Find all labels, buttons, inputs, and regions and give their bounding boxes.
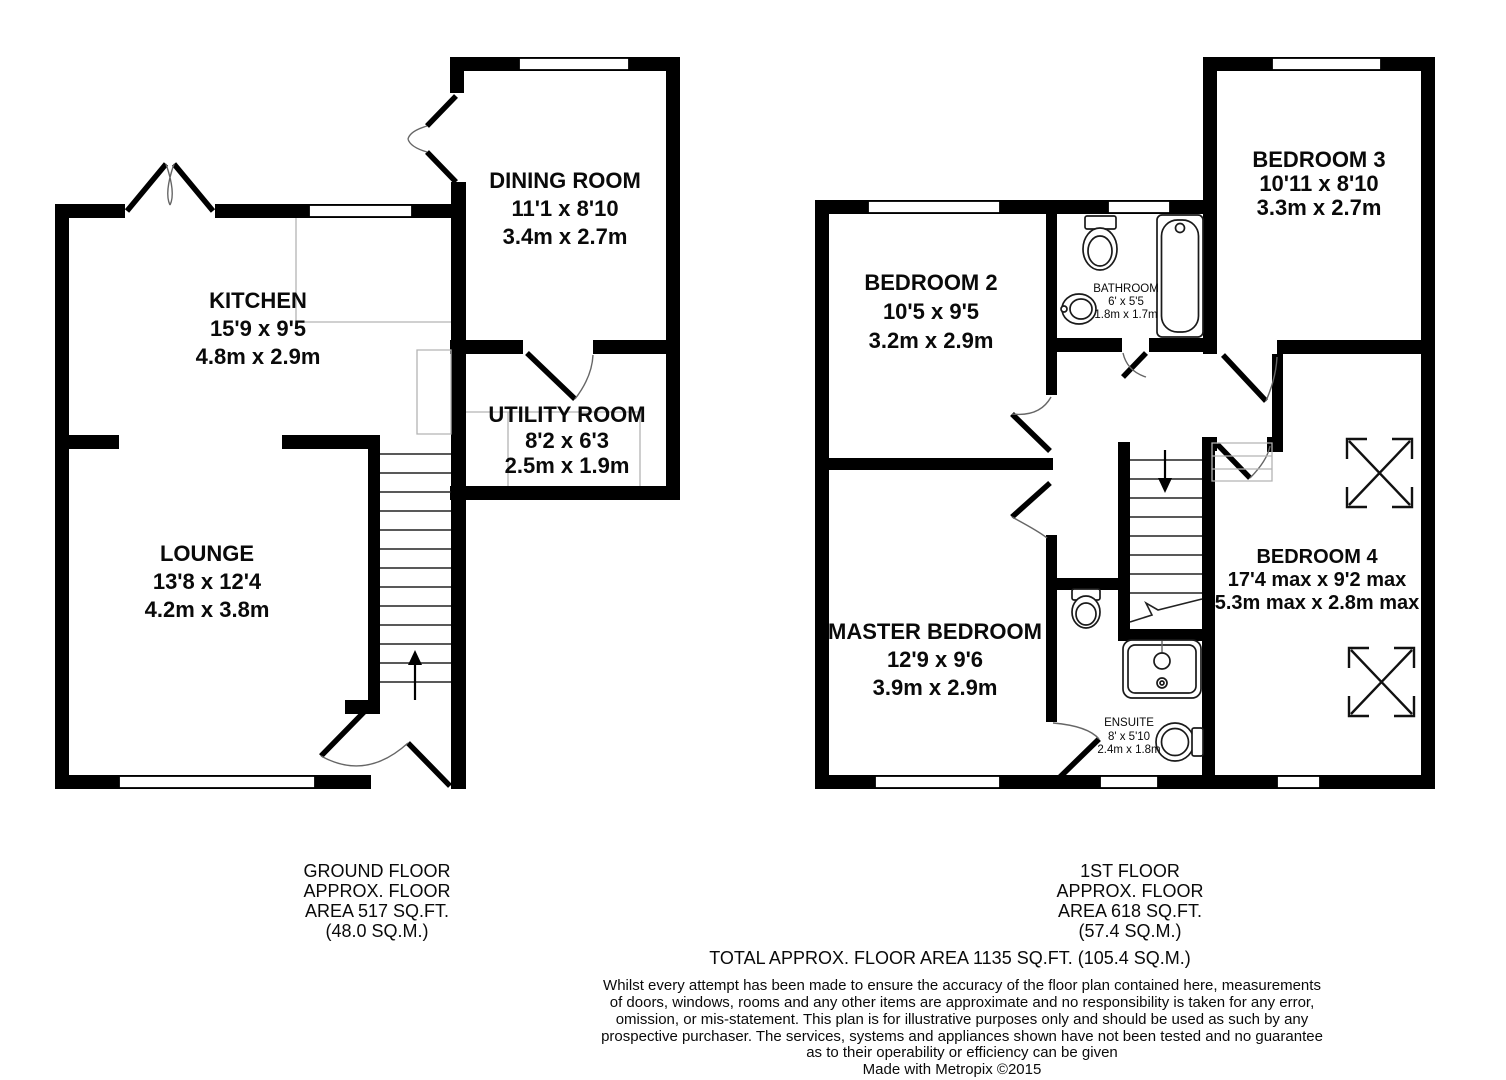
- bedroom3-door: [1223, 355, 1277, 401]
- ensuite-toilet-icon: [1072, 589, 1100, 628]
- dining-room-name: DINING ROOM: [489, 168, 641, 193]
- ground-floor-area-line1: GROUND FLOOR: [303, 861, 450, 881]
- bathroom-name: BATHROOM: [1093, 283, 1159, 295]
- first-floor-area-line3: AREA 618 SQ.FT.: [1058, 901, 1202, 921]
- room-label-master: MASTER BEDROOM 12'9 x 9'6 3.9m x 2.9m: [828, 619, 1042, 700]
- bedroom4-size-imperial: 17'4 max x 9'2 max: [1228, 569, 1407, 591]
- bedroom4-name: BEDROOM 4: [1256, 546, 1378, 568]
- kitchen-size-metric: 4.8m x 2.9m: [196, 344, 321, 369]
- disclaimer-line-4: prospective purchaser. The services, sys…: [601, 1028, 1323, 1045]
- crossed-box-symbol: [1347, 439, 1412, 507]
- bedroom2-name: BEDROOM 2: [864, 270, 997, 295]
- utility-size-imperial: 8'2 x 6'3: [525, 428, 609, 453]
- dining-room-size-imperial: 11'1 x 8'10: [511, 196, 618, 221]
- entrance-doors: [321, 710, 450, 786]
- utility-name: UTILITY ROOM: [488, 402, 645, 427]
- stairs-up-arrow-icon: [408, 650, 422, 700]
- stair-break-line: [1130, 599, 1202, 622]
- dining-window: [519, 58, 629, 70]
- bathroom-size-metric: 1.8m x 1.7m: [1094, 309, 1157, 321]
- total-area-line: TOTAL APPROX. FLOOR AREA 1135 SQ.FT. (10…: [709, 948, 1191, 968]
- footer-text: GROUND FLOOR APPROX. FLOOR AREA 517 SQ.F…: [303, 861, 1322, 1078]
- ensuite-size-imperial: 8' x 5'10: [1108, 731, 1150, 743]
- room-label-bathroom: BATHROOM 6' x 5'5 1.8m x 1.7m: [1093, 283, 1159, 321]
- stairs-down-arrow-icon: [1158, 450, 1172, 493]
- dining-room-size-metric: 3.4m x 2.7m: [503, 224, 628, 249]
- kitchen-size-imperial: 15'9 x 9'5: [210, 316, 306, 341]
- bedroom2-door: [1012, 397, 1051, 451]
- floorplan-image: DINING ROOM 11'1 x 8'10 3.4m x 2.7m KITC…: [0, 0, 1506, 1080]
- ground-staircase: [380, 454, 451, 700]
- master-door: [1012, 483, 1050, 538]
- first-floor-area-line2: APPROX. FLOOR: [1056, 881, 1203, 901]
- room-label-kitchen: KITCHEN 15'9 x 9'5 4.8m x 2.9m: [196, 288, 321, 369]
- metropix-credit: Made with Metropix ©2015: [863, 1061, 1042, 1078]
- disclaimer-line-1: Whilst every attempt has been made to en…: [603, 977, 1321, 994]
- master-name: MASTER BEDROOM: [828, 619, 1042, 644]
- ensuite-size-metric: 2.4m x 1.8m: [1097, 744, 1160, 756]
- dining-french-doors: [408, 96, 456, 182]
- bedroom2-size-imperial: 10'5 x 9'5: [883, 299, 979, 324]
- bathroom-basin-icon: [1061, 294, 1096, 324]
- ground-floor-area-block: GROUND FLOOR APPROX. FLOOR AREA 517 SQ.F…: [303, 861, 450, 941]
- first-floor-plan: BEDROOM 2 10'5 x 9'5 3.2m x 2.9m BATHROO…: [815, 57, 1435, 789]
- lounge-size-imperial: 13'8 x 12'4: [153, 569, 262, 594]
- ensuite-door: [1053, 723, 1099, 777]
- bedroom3-size-imperial: 10'11 x 8'10: [1259, 171, 1378, 196]
- bedroom3-size-metric: 3.3m x 2.7m: [1257, 195, 1382, 220]
- kitchen-window: [309, 205, 412, 217]
- bedroom3-name: BEDROOM 3: [1252, 147, 1385, 172]
- room-label-bedroom4: BEDROOM 4 17'4 max x 9'2 max 5.3m max x …: [1215, 546, 1420, 614]
- room-label-ensuite: ENSUITE 8' x 5'10 2.4m x 1.8m: [1097, 717, 1160, 756]
- bedroom2-window: [868, 201, 1000, 213]
- ensuite-toilet2-icon: [1156, 723, 1203, 761]
- bathroom-door: [1123, 353, 1146, 377]
- ensuite-window: [1100, 776, 1158, 788]
- master-window: [875, 776, 1000, 788]
- bedroom4-window: [1277, 776, 1320, 788]
- ground-floor-area-line4: (48.0 SQ.M.): [325, 921, 428, 941]
- ground-floor-area-line3: AREA 517 SQ.FT.: [305, 901, 449, 921]
- stair-treads: [380, 454, 451, 682]
- ensuite-name: ENSUITE: [1104, 717, 1154, 729]
- disclaimer-line-2: of doors, windows, rooms and any other i…: [610, 994, 1315, 1011]
- utility-door: [527, 353, 593, 399]
- room-label-bedroom3: BEDROOM 3 10'11 x 8'10 3.3m x 2.7m: [1252, 147, 1385, 220]
- floorplan-svg: DINING ROOM 11'1 x 8'10 3.4m x 2.7m KITC…: [0, 0, 1506, 1080]
- ground-floor-area-line2: APPROX. FLOOR: [303, 881, 450, 901]
- first-floor-area-line1: 1ST FLOOR: [1080, 861, 1180, 881]
- bathroom-toilet-icon: [1083, 216, 1117, 270]
- master-size-imperial: 12'9 x 9'6: [887, 647, 983, 672]
- bedroom4-size-metric: 5.3m max x 2.8m max: [1215, 592, 1420, 614]
- bathroom-window: [1108, 201, 1170, 213]
- bathroom-size-imperial: 6' x 5'5: [1108, 296, 1144, 308]
- lounge-name: LOUNGE: [160, 541, 254, 566]
- disclaimer-line-3: omission, or mis-statement. This plan is…: [616, 1011, 1309, 1028]
- bath-icon: [1157, 215, 1203, 337]
- first-floor-area-block: 1ST FLOOR APPROX. FLOOR AREA 618 SQ.FT. …: [1056, 861, 1203, 941]
- room-label-dining: DINING ROOM 11'1 x 8'10 3.4m x 2.7m: [489, 168, 641, 249]
- lounge-window: [119, 776, 315, 788]
- room-label-bedroom2: BEDROOM 2 10'5 x 9'5 3.2m x 2.9m: [864, 270, 997, 353]
- room-label-utility: UTILITY ROOM 8'2 x 6'3 2.5m x 1.9m: [488, 402, 645, 478]
- bedroom4-door: [1217, 444, 1270, 478]
- crossed-box-symbol: [1349, 648, 1414, 716]
- kitchen-french-doors: [127, 164, 213, 211]
- kitchen-name: KITCHEN: [209, 288, 307, 313]
- master-size-metric: 3.9m x 2.9m: [873, 675, 998, 700]
- room-label-lounge: LOUNGE 13'8 x 12'4 4.2m x 3.8m: [145, 541, 270, 622]
- first-floor-area-line4: (57.4 SQ.M.): [1078, 921, 1181, 941]
- ground-floor-plan: DINING ROOM 11'1 x 8'10 3.4m x 2.7m KITC…: [55, 57, 680, 789]
- bedroom3-window: [1272, 58, 1381, 70]
- ensuite-sink-icon: [1123, 640, 1201, 698]
- utility-size-metric: 2.5m x 1.9m: [505, 453, 630, 478]
- bedroom2-size-metric: 3.2m x 2.9m: [869, 328, 994, 353]
- lounge-size-metric: 4.2m x 3.8m: [145, 597, 270, 622]
- disclaimer-line-5: as to their operability or efficiency ca…: [806, 1044, 1118, 1061]
